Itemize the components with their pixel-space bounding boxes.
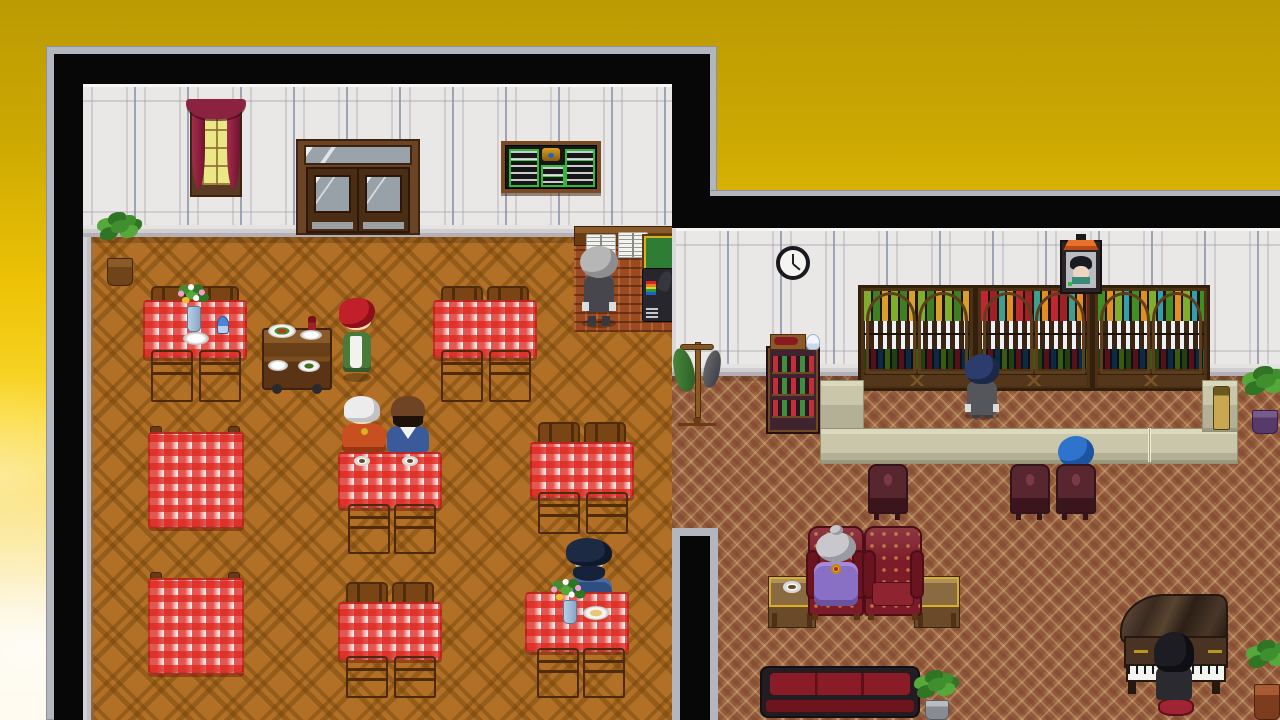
chair[interactable]	[538, 492, 580, 534]
npc-brooch	[831, 564, 841, 574]
plant-pot	[1252, 410, 1278, 434]
dining-table[interactable]	[338, 446, 438, 552]
potted-plant	[912, 666, 960, 720]
cabinet-arch	[1035, 292, 1085, 374]
sofa[interactable]	[760, 666, 920, 718]
npc-hair	[566, 538, 612, 566]
npc-pianist[interactable]	[1150, 632, 1198, 716]
coat-rack	[676, 336, 718, 428]
npc-waitress[interactable]	[338, 298, 376, 382]
cabinet-rail	[1098, 373, 1204, 386]
wine-cabinet	[766, 346, 820, 434]
cabinet-arch	[1100, 292, 1150, 374]
liquor-cabinet	[858, 285, 976, 391]
chair[interactable]	[346, 656, 388, 698]
chair-back	[538, 422, 580, 444]
npc-hair	[580, 246, 618, 278]
chair[interactable]	[199, 350, 241, 402]
plant-pot	[107, 258, 133, 286]
npc-cuffs	[965, 404, 971, 412]
plant-leaves	[111, 220, 129, 233]
plant-pot	[1254, 684, 1280, 720]
plant-leaves	[1256, 374, 1276, 388]
piano-leg	[1212, 682, 1220, 694]
piano-stool	[1158, 698, 1194, 716]
side-table-legs	[772, 613, 812, 627]
dining-room	[46, 46, 717, 720]
sofa-seat	[766, 700, 914, 712]
portrait-pediment	[1060, 240, 1102, 250]
flower-vase	[563, 600, 577, 624]
bottle-row	[772, 400, 814, 418]
menu-panel-right	[565, 149, 595, 187]
room-divider-wall	[672, 528, 718, 720]
chair[interactable]	[583, 648, 625, 698]
gingham-tablecloth	[148, 578, 244, 674]
lounge-border	[672, 196, 1280, 228]
bar-counter-front	[820, 428, 1238, 464]
npc-hair	[965, 354, 999, 384]
door-right-leaf[interactable]	[357, 167, 410, 233]
portrait-frame	[1060, 240, 1102, 294]
portrait-photo	[1066, 252, 1096, 288]
dining-wall-edge	[83, 237, 93, 720]
serving-cart[interactable]	[262, 328, 332, 390]
bottle-row	[772, 378, 814, 396]
portrait-signature	[1068, 282, 1072, 286]
armchair-legs	[812, 614, 860, 620]
cash-register[interactable]	[642, 268, 672, 322]
chair[interactable]	[394, 504, 436, 554]
coat-rack-feet	[678, 418, 716, 426]
coffee-cup	[354, 456, 370, 466]
chair[interactable]	[151, 350, 193, 402]
npc-hair	[344, 396, 380, 422]
dining-table[interactable]	[523, 588, 627, 704]
chair-back	[392, 582, 434, 604]
npc-shadow	[582, 319, 617, 328]
door-left-leaf[interactable]	[306, 167, 359, 233]
side-table-legs	[918, 613, 956, 627]
divider-black	[680, 536, 710, 720]
green-coat	[672, 347, 697, 393]
menu-emblem	[542, 148, 560, 161]
plant-pot	[925, 700, 949, 720]
register-arm	[656, 270, 672, 293]
door-kickplate	[312, 222, 353, 229]
wine-bottle	[774, 337, 798, 345]
chair[interactable]	[537, 648, 579, 698]
menu-panel-left	[509, 149, 539, 187]
armchair-seat	[872, 582, 914, 606]
chair[interactable]	[441, 350, 483, 402]
coat-rack-bar	[680, 344, 714, 350]
window-glass	[202, 115, 230, 185]
npc-butler[interactable]	[576, 246, 622, 328]
cart-wheel	[312, 384, 322, 394]
bar-stool[interactable]	[868, 464, 908, 514]
flower-vase	[187, 306, 201, 332]
npc-cuffs	[582, 302, 589, 311]
wall-clock	[776, 246, 810, 280]
cart-food-plate	[268, 324, 296, 338]
cart-bowl	[268, 360, 288, 371]
chair-back	[584, 422, 626, 444]
dining-room-interior	[83, 84, 672, 720]
lounge-room	[672, 190, 1280, 720]
gingham-tablecloth	[338, 602, 442, 660]
armchair[interactable]	[864, 526, 922, 616]
bar-counter-flap	[1148, 428, 1151, 462]
bottle-on-counter	[1213, 386, 1230, 430]
gingham-tablecloth	[530, 442, 634, 498]
coffee-cup	[783, 581, 801, 593]
register-screen	[646, 281, 656, 295]
game-viewport[interactable]	[0, 0, 1280, 720]
bar-stool[interactable]	[1010, 464, 1050, 514]
coat-rack-pole	[695, 342, 701, 418]
potted-plant	[99, 194, 139, 288]
soup-bowl	[583, 606, 609, 620]
register-keypad	[646, 308, 658, 318]
cart-tray	[300, 330, 322, 340]
door-glass	[365, 175, 402, 213]
blue-goblet	[217, 316, 229, 334]
dining-table[interactable]	[143, 286, 243, 400]
chair[interactable]	[348, 504, 390, 554]
door-transom-glass	[304, 145, 412, 165]
gingham-tablecloth	[148, 432, 244, 528]
chair-back	[346, 582, 388, 604]
npc-hair-bun	[830, 525, 843, 535]
npc-legs	[588, 316, 596, 326]
npc-apron	[350, 336, 362, 368]
door-glass	[314, 175, 351, 213]
bar-stool[interactable]	[1056, 464, 1096, 514]
window	[190, 101, 242, 197]
bar-back-cabinets	[858, 285, 1204, 387]
portrait-collar	[1072, 277, 1090, 284]
plant-leaves	[1260, 648, 1278, 661]
window-curtain-right	[227, 109, 240, 189]
liquor-cabinet	[1092, 285, 1210, 391]
cabinet-arch	[866, 292, 916, 374]
plant-leaves	[928, 678, 946, 691]
cart-wheel	[272, 384, 282, 394]
npc-shadow	[343, 373, 372, 382]
window-curtain-left	[192, 109, 205, 189]
dining-table[interactable]	[530, 420, 630, 530]
wine-glass	[806, 334, 820, 350]
coffee-cup	[402, 456, 418, 466]
entrance-double-door[interactable]	[296, 139, 420, 235]
npc-suit	[967, 381, 997, 415]
chair[interactable]	[489, 350, 531, 402]
sofa-cushions	[770, 673, 910, 695]
dining-table[interactable]	[148, 572, 240, 676]
potted-plant	[1248, 620, 1280, 720]
cabinet-rail	[864, 373, 970, 386]
door-kickplate	[363, 222, 404, 229]
menu-chalkboard[interactable]	[501, 141, 601, 193]
chair[interactable]	[586, 492, 628, 534]
npc-beard	[393, 416, 423, 428]
dining-table[interactable]	[338, 582, 438, 694]
menu-panel-center	[541, 165, 565, 187]
npc-bartender[interactable]	[960, 354, 1004, 420]
npc-hair	[816, 532, 856, 562]
piano-leg	[1128, 682, 1136, 694]
npc-old-lady[interactable]	[812, 528, 862, 612]
chair[interactable]	[394, 656, 436, 698]
bottle-row	[772, 356, 814, 374]
plate	[183, 332, 209, 345]
cart-bowl	[298, 360, 320, 372]
armchair-legs	[868, 614, 918, 620]
cabinet-arch	[1152, 292, 1202, 374]
npc-hair	[1154, 632, 1194, 672]
flower-bouquet	[173, 282, 213, 308]
dining-table[interactable]	[433, 286, 533, 400]
npc-gold-clasp	[361, 428, 368, 435]
dining-table[interactable]	[148, 426, 240, 530]
potted-plant	[1242, 348, 1280, 438]
